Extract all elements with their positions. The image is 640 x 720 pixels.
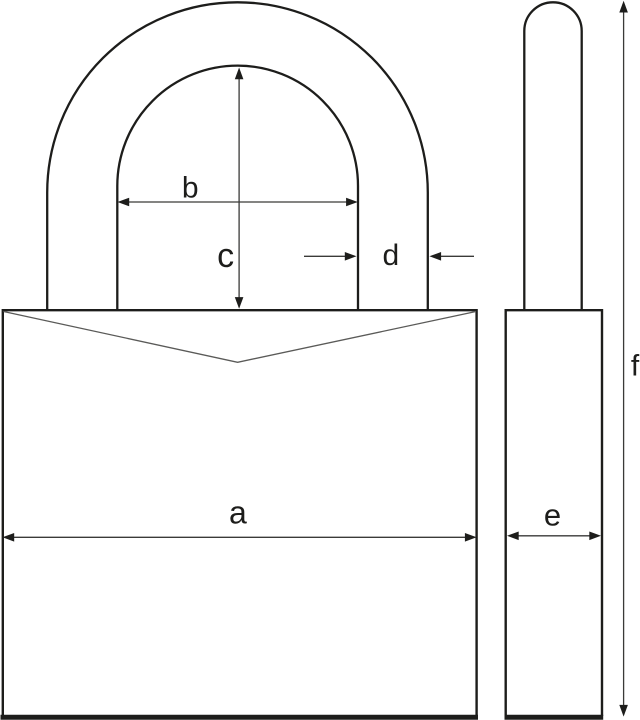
svg-text:e: e (544, 498, 561, 533)
svg-text:d: d (382, 239, 399, 272)
svg-text:f: f (631, 349, 640, 382)
svg-text:a: a (229, 495, 247, 531)
svg-text:c: c (217, 237, 234, 275)
svg-text:b: b (182, 172, 199, 205)
